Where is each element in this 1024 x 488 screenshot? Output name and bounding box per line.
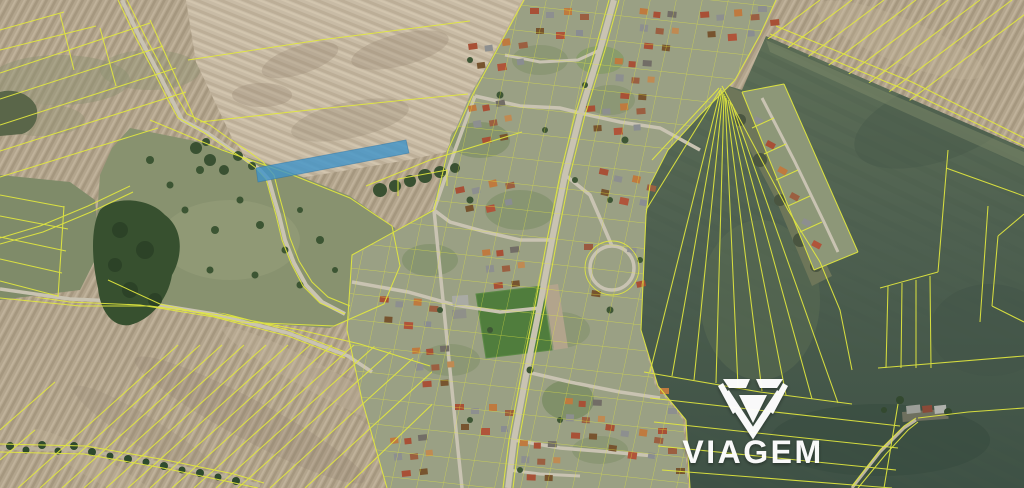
map-canvas[interactable]: VIAGEM — [0, 0, 1024, 488]
brand-wordmark: VIAGEM — [682, 434, 823, 470]
map-viewport[interactable]: VIAGEM — [0, 0, 1024, 488]
